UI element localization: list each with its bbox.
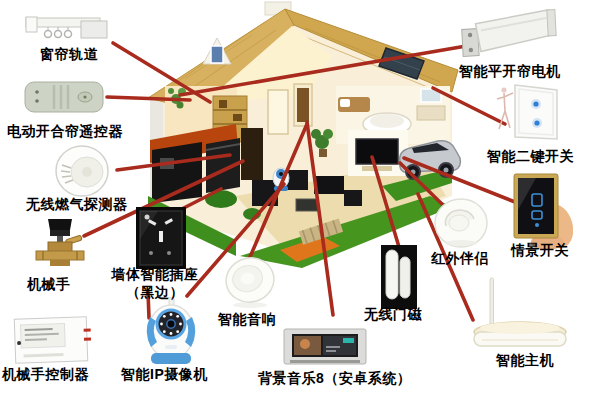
curtain-remote-label: 电动开合帘遥控器 xyxy=(7,123,123,141)
gas-detector-image xyxy=(54,143,110,199)
curtain-track-image xyxy=(24,10,112,46)
door-magnet-image xyxy=(381,245,417,309)
tv xyxy=(356,139,398,164)
smart-home-diagram: 窗帘轨道 电动开合帘遥控器 无线燃气探测器 机械手 机械手控制器 墙体智能插座 … xyxy=(0,0,600,400)
door-magnet-label: 无线门磁 xyxy=(364,306,422,324)
infrared-companion-image xyxy=(433,195,489,251)
wall-socket-image xyxy=(136,207,186,269)
scene-switch-image xyxy=(509,172,573,250)
scene-switch-label: 情景开关 xyxy=(511,242,569,260)
curtain-motor-image xyxy=(457,5,561,65)
gas-detector-label: 无线燃气探测器 xyxy=(26,196,128,214)
wall-socket-label: 墙体智能插座 （黑边） xyxy=(105,266,205,301)
two-key-switch-label: 智能二键开关 xyxy=(487,148,574,166)
smart-host-label: 智能主机 xyxy=(496,352,554,370)
two-key-switch-image xyxy=(493,81,561,147)
ip-camera-label: 智能IP摄像机 xyxy=(121,366,208,384)
curtain-motor-label: 智能平开帘电机 xyxy=(459,63,561,81)
infrared-companion-label: 红外伴侣 xyxy=(431,250,489,268)
smart-speaker-image xyxy=(224,253,276,311)
wall-socket-label-line1: 墙体智能插座 xyxy=(105,266,205,284)
ip-camera-image xyxy=(143,297,201,365)
curtain-track-label: 窗帘轨道 xyxy=(40,46,98,64)
manipulator-controller-image xyxy=(11,313,93,367)
manipulator-label: 机械手 xyxy=(27,276,71,294)
wall-socket-label-line2: （黑边） xyxy=(105,284,205,302)
curtain-remote-image xyxy=(22,78,106,116)
bg-music-panel-image xyxy=(283,325,369,369)
ballerina-figurine xyxy=(497,87,513,129)
bg-music-panel-label: 背景音乐8（安卓系统） xyxy=(258,370,411,388)
manipulator-image xyxy=(34,217,86,275)
smart-speaker-label: 智能音响 xyxy=(218,311,276,329)
manipulator-controller-label: 机械手控制器 xyxy=(2,366,89,384)
smart-host-image xyxy=(472,276,572,354)
